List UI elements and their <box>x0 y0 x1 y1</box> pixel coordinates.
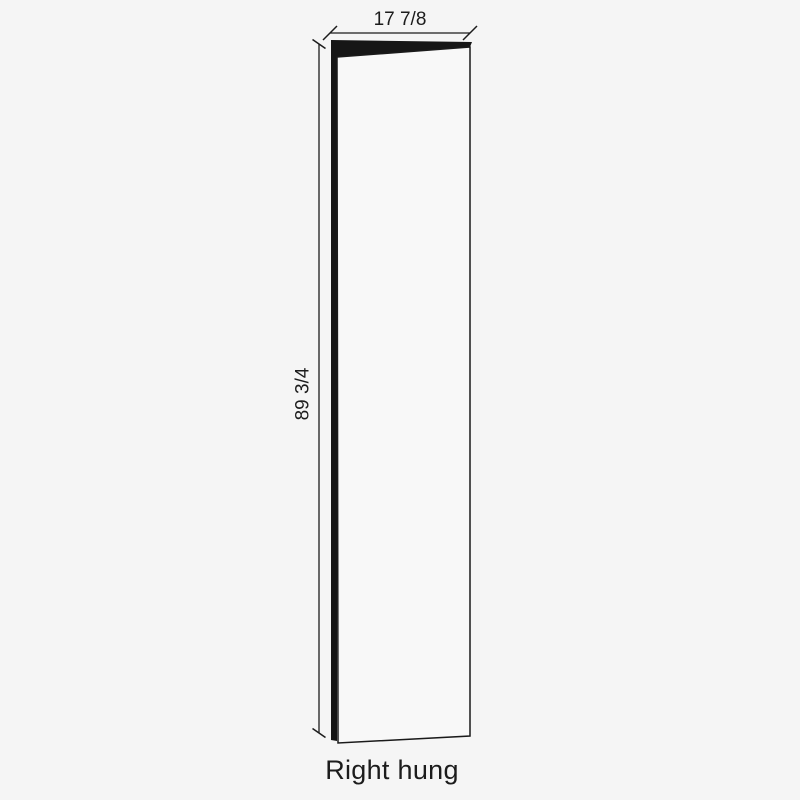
door-face-panel <box>337 47 470 743</box>
width-dimension-label: 17 7/8 <box>320 10 480 31</box>
door-diagram: 17 7/8 89 3/4 Right hung <box>0 0 800 800</box>
height-dimension-label: 89 3/4 <box>294 368 315 421</box>
diagram-caption: Right hung <box>242 755 542 786</box>
door-diagram-canvas <box>0 0 800 800</box>
